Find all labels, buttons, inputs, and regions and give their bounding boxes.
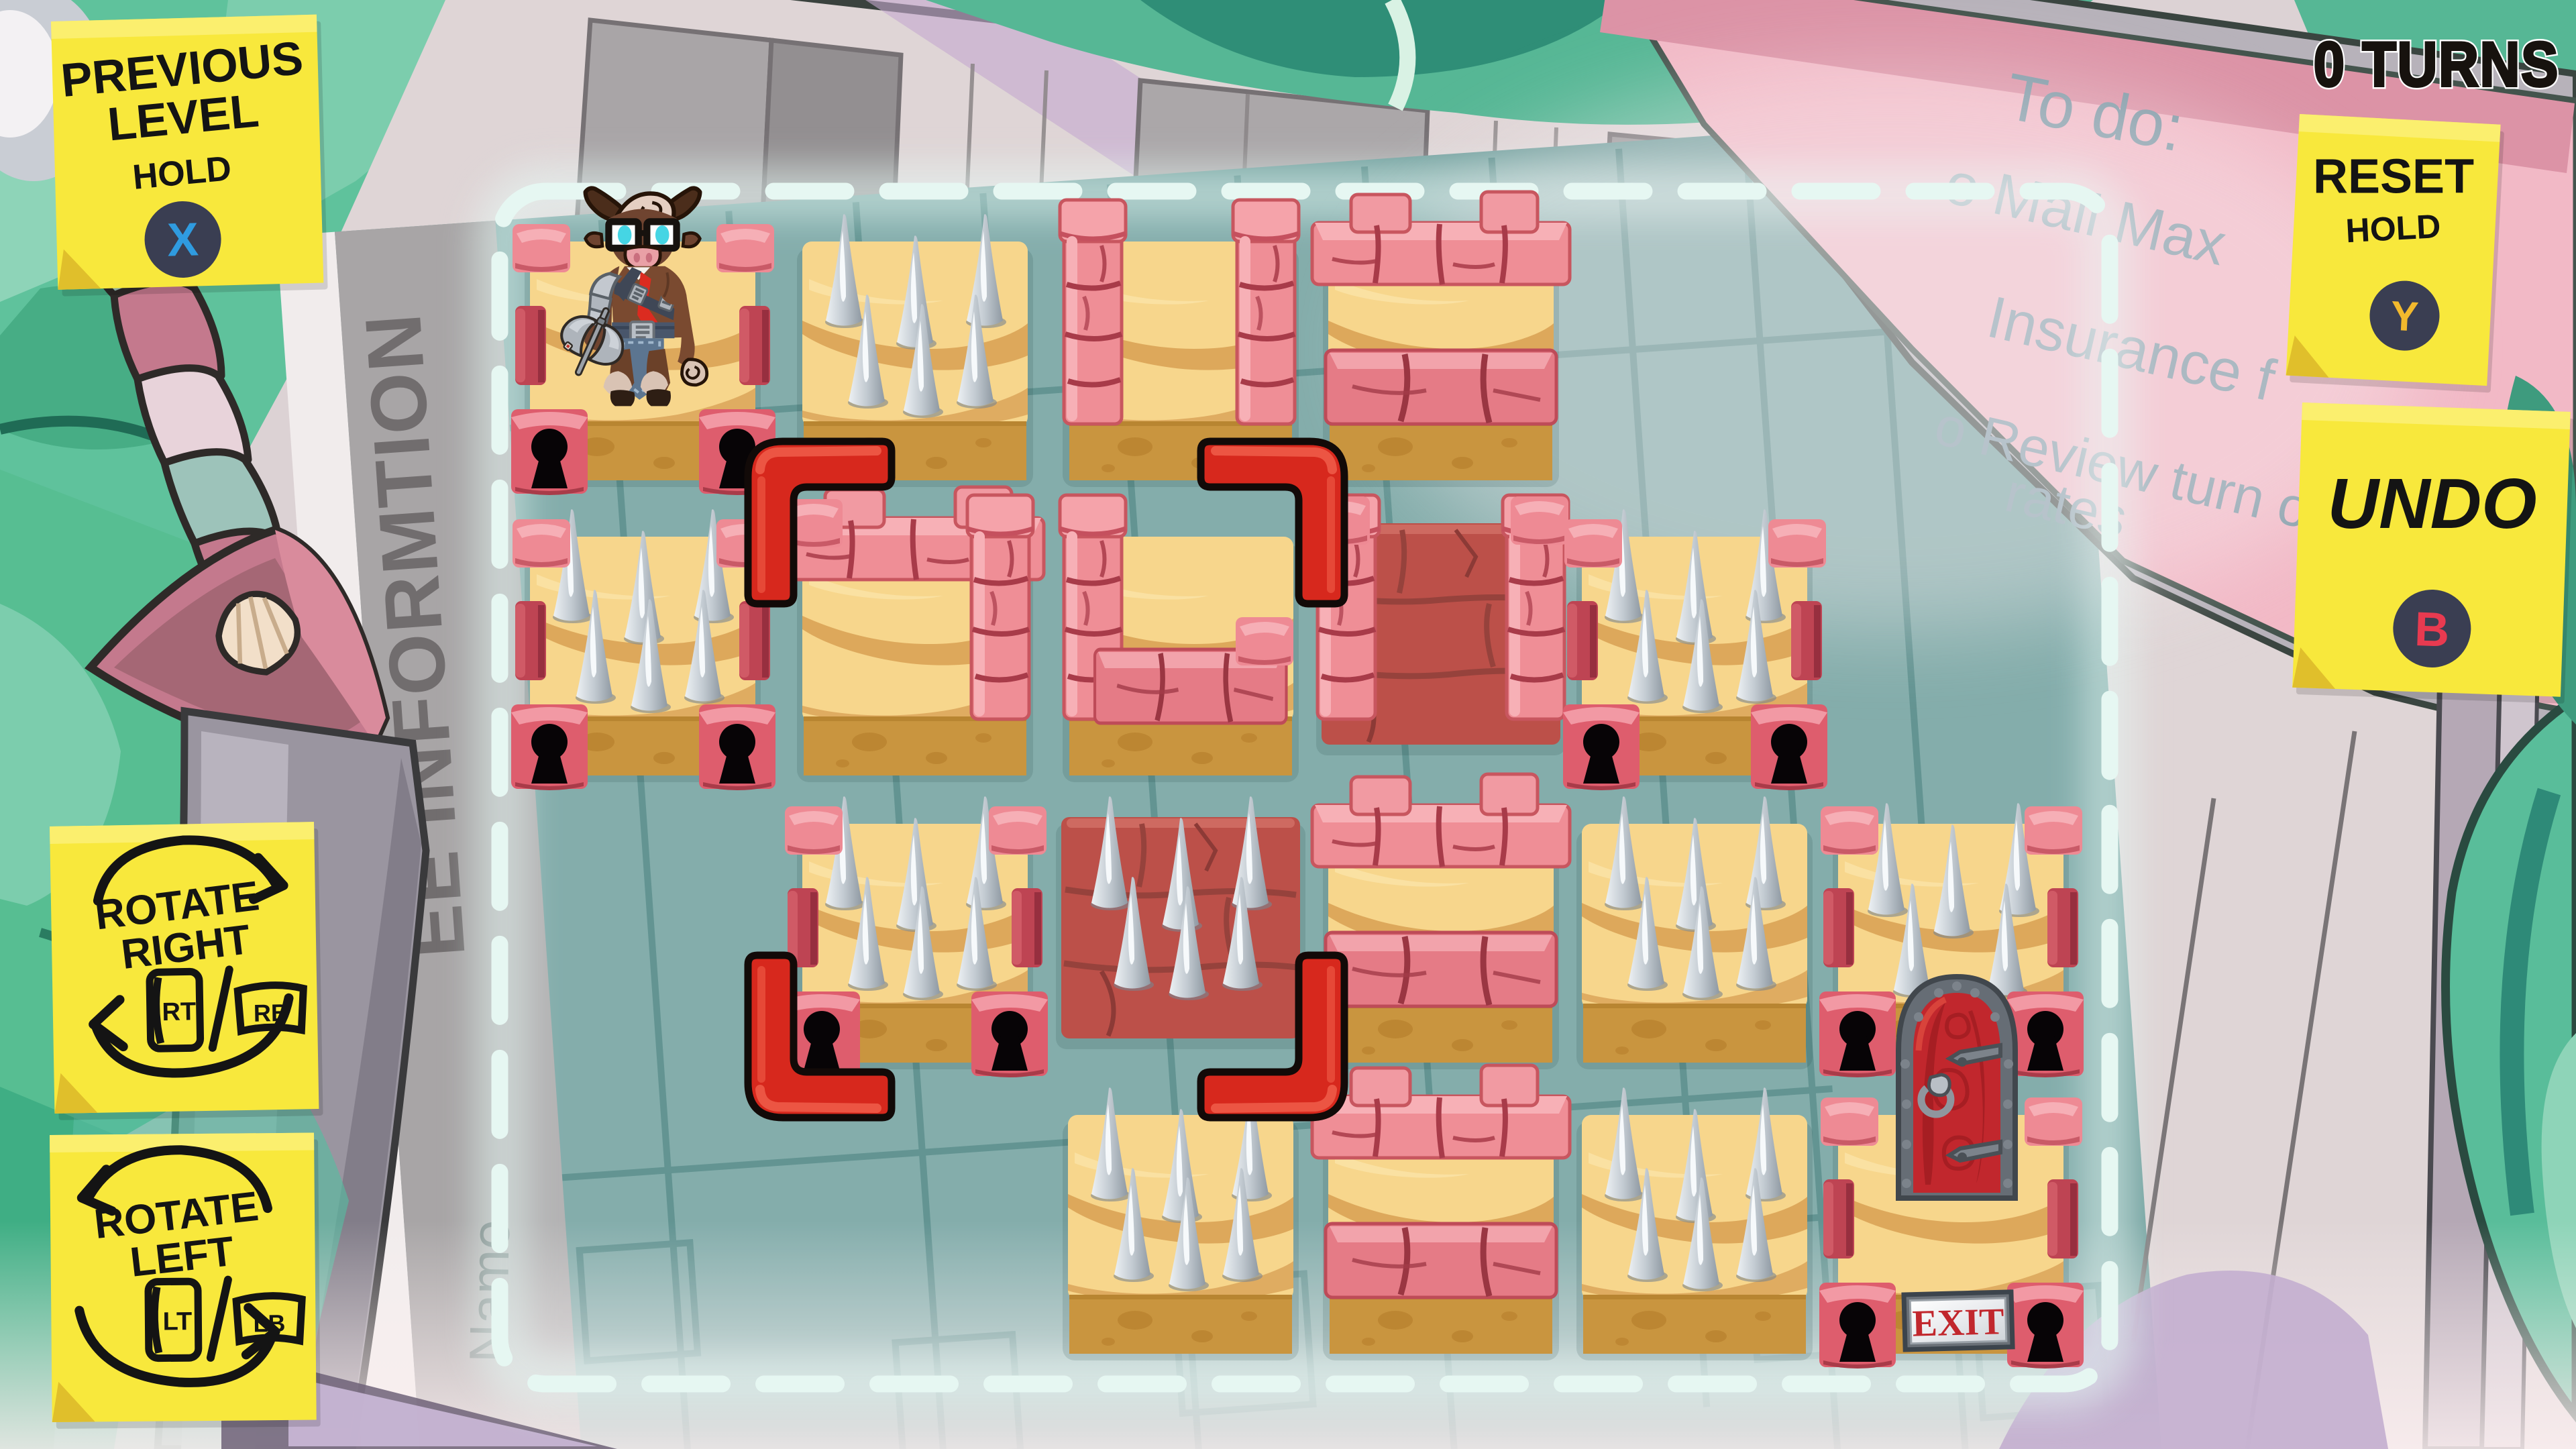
svg-text:LT: LT: [162, 1307, 192, 1336]
svg-text:0 TURNS: 0 TURNS: [2314, 29, 2559, 99]
svg-text:LB: LB: [253, 1309, 285, 1337]
svg-text:B: B: [2414, 602, 2451, 657]
svg-text:EXIT: EXIT: [1912, 1301, 2005, 1345]
svg-text:X: X: [166, 213, 199, 266]
svg-text:HOLD: HOLD: [2345, 207, 2441, 250]
svg-text:RB: RB: [254, 999, 289, 1027]
svg-text:UNDO: UNDO: [2328, 464, 2537, 543]
svg-text:Y: Y: [2390, 293, 2420, 341]
svg-text:RT: RT: [162, 998, 196, 1026]
svg-text:RESET: RESET: [2313, 150, 2474, 203]
